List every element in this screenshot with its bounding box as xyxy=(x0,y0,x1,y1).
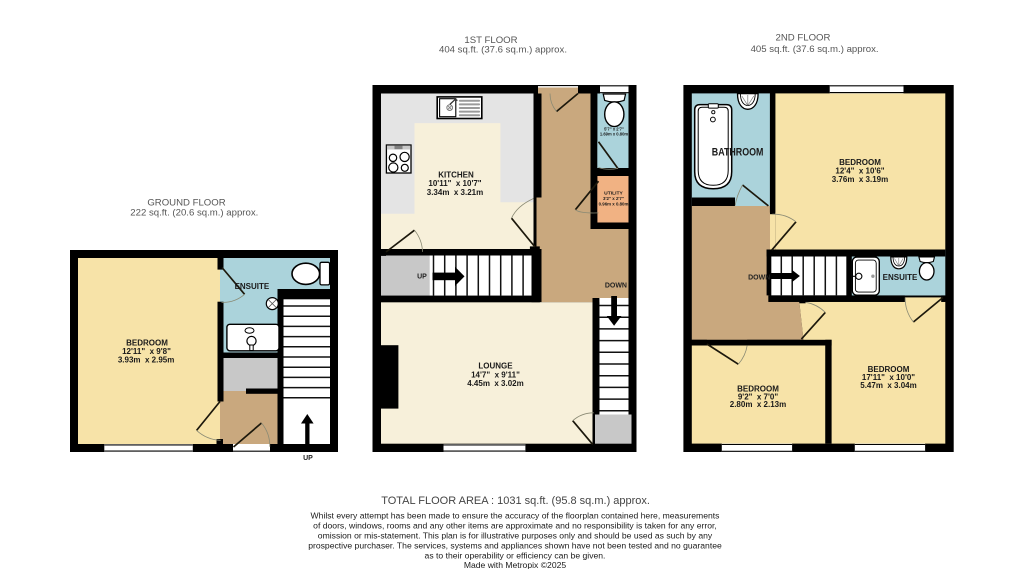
svg-text:TOTAL FLOOR AREA : 1031 sq.ft.: TOTAL FLOOR AREA : 1031 sq.ft. (95.8 sq.… xyxy=(381,495,650,507)
svg-text:of doors, windows, rooms and a: of doors, windows, rooms and any other i… xyxy=(313,521,717,531)
svg-text:3.34m x 3.21m: 3.34m x 3.21m xyxy=(427,188,483,197)
svg-text:3.76m x 3.19m: 3.76m x 3.19m xyxy=(832,175,888,184)
svg-text:5.47m x 3.04m: 5.47m x 3.04m xyxy=(860,381,916,390)
svg-text:405 sq.ft. (37.6 sq.m.) approx: 405 sq.ft. (37.6 sq.m.) approx. xyxy=(751,44,879,55)
svg-text:12'4" x 10'6": 12'4" x 10'6" xyxy=(835,167,884,176)
svg-text:KITCHEN: KITCHEN xyxy=(438,171,474,180)
svg-text:10'11" x 10'7": 10'11" x 10'7" xyxy=(428,179,481,188)
svg-text:omission or mis-statement. Thi: omission or mis-statement. This plan is … xyxy=(318,531,713,541)
svg-text:DOWN: DOWN xyxy=(748,274,770,281)
svg-text:4.45m x 3.02m: 4.45m x 3.02m xyxy=(467,379,523,388)
svg-text:UP: UP xyxy=(417,274,427,281)
svg-text:ENSUITE: ENSUITE xyxy=(235,282,270,291)
svg-text:BEDROOM: BEDROOM xyxy=(839,158,881,167)
svg-text:UP: UP xyxy=(303,455,313,462)
svg-text:LOUNGE: LOUNGE xyxy=(478,362,513,371)
svg-text:3.93m x 2.95m: 3.93m x 2.95m xyxy=(118,356,174,365)
svg-text:1.69m x 0.80m: 1.69m x 0.80m xyxy=(600,131,628,136)
svg-text:DOWN: DOWN xyxy=(605,283,627,290)
svg-text:404 sq.ft. (37.6 sq.m.) approx: 404 sq.ft. (37.6 sq.m.) approx. xyxy=(439,45,567,56)
svg-text:Whilst every attempt has been: Whilst every attempt has been made to en… xyxy=(311,511,720,521)
svg-text:2ND FLOOR: 2ND FLOOR xyxy=(776,33,831,44)
svg-text:as to their operability or eff: as to their operability or efficiency ca… xyxy=(425,551,606,561)
svg-text:3'2" x 2'7": 3'2" x 2'7" xyxy=(603,196,624,201)
svg-text:222 sq.ft. (20.6 sq.m.) approx: 222 sq.ft. (20.6 sq.m.) approx. xyxy=(130,208,258,219)
svg-text:0.96m x 0.80m: 0.96m x 0.80m xyxy=(599,201,629,206)
svg-text:2.80m x 2.13m: 2.80m x 2.13m xyxy=(730,400,786,409)
svg-text:BATHROOM: BATHROOM xyxy=(712,147,764,159)
svg-text:14'7" x 9'11": 14'7" x 9'11" xyxy=(471,370,520,379)
svg-text:Made with Metropix ©2025: Made with Metropix ©2025 xyxy=(464,560,567,569)
svg-text:prospective purchaser. The ser: prospective purchaser. The services, sys… xyxy=(308,541,722,551)
svg-text:ENSUITE: ENSUITE xyxy=(883,273,918,282)
